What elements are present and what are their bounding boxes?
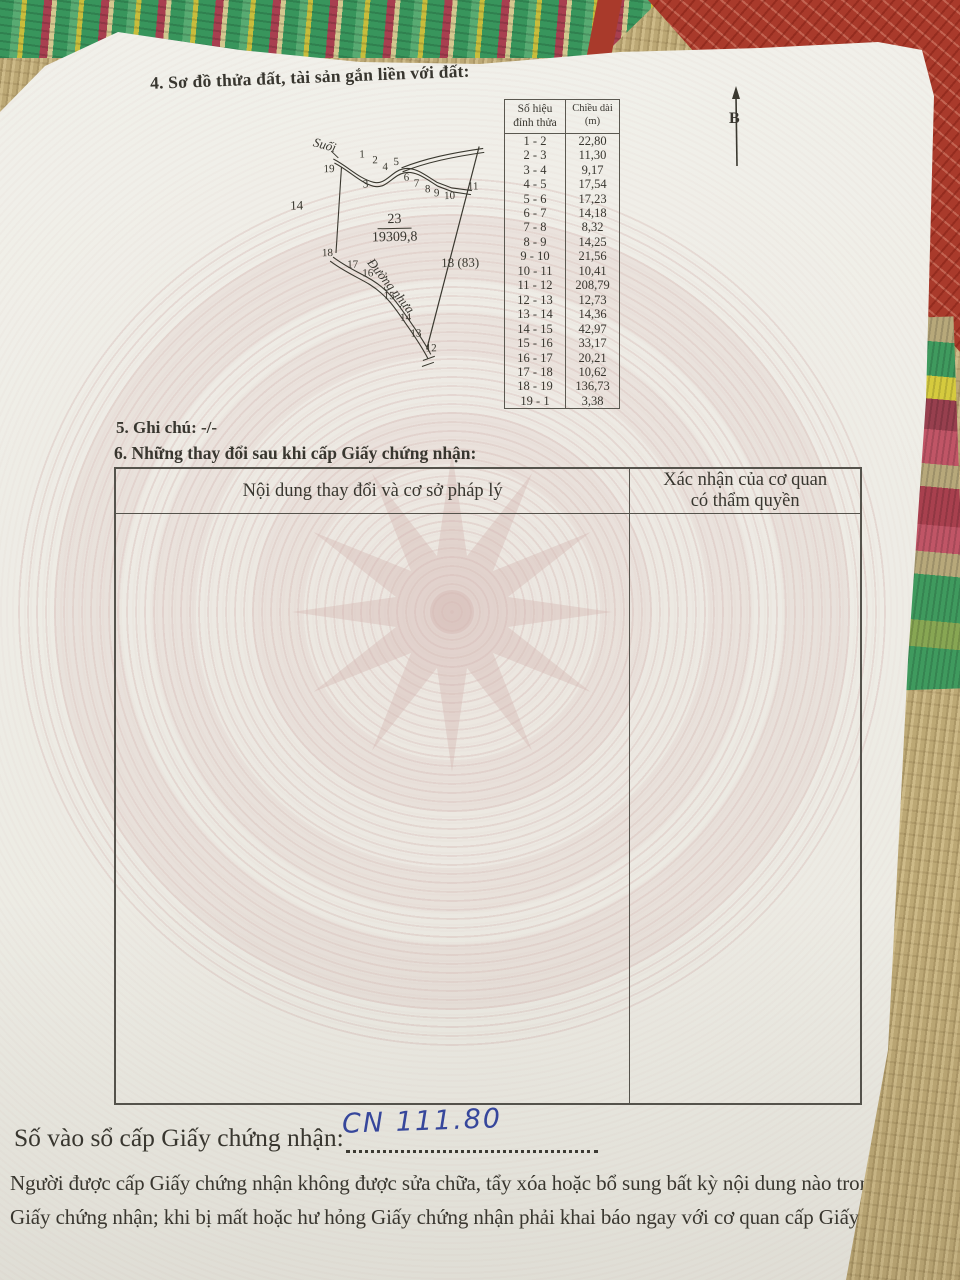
changes-table: Nội dung thay đổi và cơ sở pháp lý Xác n…	[114, 467, 862, 1105]
vertex-pair-cell: 9 - 10	[505, 249, 566, 263]
length-cell: 33,17	[566, 336, 619, 350]
table-row: 2 - 3 11,30	[505, 148, 619, 162]
vertex-label: 11	[468, 180, 479, 192]
length-cell: 17,23	[566, 192, 619, 206]
vertex-label: 4	[382, 161, 388, 173]
length-cell: 8,32	[566, 220, 619, 234]
certificate-paper: 4. Sơ đồ thửa đất, tài sản gắn liền với …	[0, 0, 960, 1280]
vertex-pair-cell: 18 - 19	[505, 379, 566, 393]
dotted-line: CN 111.80	[346, 1120, 598, 1153]
vertex-label: 1	[359, 148, 365, 160]
length-cell: 10,62	[566, 365, 619, 379]
vertex-pair-cell: 15 - 16	[505, 336, 566, 350]
vertex-label: 6	[404, 172, 410, 184]
length-cell: 11,30	[566, 148, 619, 162]
vertex-label: 15	[384, 290, 395, 302]
length-header: Chiều dài (m)	[566, 100, 619, 133]
length-cell: 14,25	[566, 235, 619, 249]
vertex-pair-cell: 13 - 14	[505, 307, 566, 321]
section4-title: 4. Sơ đồ thửa đất, tài sản gắn liền với …	[150, 59, 511, 94]
vertex-pair-cell: 2 - 3	[505, 148, 566, 162]
vertex-pair-cell: 7 - 8	[505, 220, 566, 234]
adjacent-parcel-left: 14	[290, 198, 303, 214]
length-cell: 10,41	[566, 264, 619, 278]
vertex-pair-cell: 6 - 7	[505, 206, 566, 220]
vertex-label: 19	[323, 163, 334, 175]
vertex-pair-cell: 3 - 4	[505, 163, 566, 177]
vertex-label: 14	[400, 312, 411, 324]
table-row: 6 - 7 14,18	[505, 206, 619, 220]
vertex-pair-header: Số hiệu đỉnh thửa	[505, 100, 566, 133]
changes-content-header: Nội dung thay đổi và cơ sở pháp lý	[116, 469, 630, 513]
vertex-pair-cell: 14 - 15	[505, 322, 566, 336]
vertex-label: 2	[372, 154, 378, 166]
vertex-pair-cell: 10 - 11	[505, 264, 566, 278]
vertex-label: 3	[363, 178, 369, 190]
parcel-area: 19309,8	[365, 229, 425, 246]
table-row: 9 - 10 21,56	[505, 249, 619, 263]
registry-number-handwritten: CN 111.80	[341, 1103, 502, 1140]
vertex-label: 10	[444, 190, 455, 202]
table-row: 13 - 14 14,36	[505, 307, 619, 321]
table-row: 1 - 2 22,80	[505, 134, 619, 148]
table-row: 19 - 1 3,38	[505, 394, 619, 408]
vertex-label: 9	[434, 187, 440, 199]
table-row: 18 - 19 136,73	[505, 379, 619, 393]
vertex-pair-cell: 1 - 2	[505, 134, 566, 148]
length-cell: 22,80	[566, 134, 619, 148]
table-row: 15 - 16 33,17	[505, 336, 619, 350]
length-cell: 20,21	[566, 351, 619, 365]
vertex-label: 8	[425, 183, 431, 195]
changes-confirmation-header: Xác nhận của cơ quan có thẩm quyền	[630, 469, 860, 513]
changes-content-cell	[116, 514, 630, 1103]
table-row: 14 - 15 42,97	[505, 322, 619, 336]
table-row: 17 - 18 10,62	[505, 365, 619, 379]
length-cell: 14,18	[566, 206, 619, 220]
length-cell: 17,54	[566, 177, 619, 191]
edge-length-rows: 1 - 2 22,80 2 - 3 11,30 3 - 4 9,17 4 - 5…	[505, 134, 619, 409]
north-label: B	[729, 110, 740, 128]
vertex-pair-cell: 4 - 5	[505, 177, 566, 191]
table-row: 11 - 12 208,79	[505, 278, 619, 292]
vertex-pair-cell: 5 - 6	[505, 192, 566, 206]
length-cell: 14,36	[566, 307, 619, 321]
length-cell: 3,38	[566, 394, 619, 408]
changes-table-header: Nội dung thay đổi và cơ sở pháp lý Xác n…	[116, 469, 860, 514]
length-cell: 9,17	[566, 163, 619, 177]
table-row: 5 - 6 17,23	[505, 192, 619, 206]
table-row: 12 - 13 12,73	[505, 293, 619, 307]
vertex-label: 18	[322, 247, 333, 259]
parcel-diagram: Suối Đường nhựa 23 19309,8 14 18 (83) 19…	[273, 126, 512, 380]
vertex-pair-cell: 17 - 18	[505, 365, 566, 379]
table-row: 3 - 4 9,17	[505, 163, 619, 177]
vertex-label: 5	[393, 156, 399, 168]
vertex-pair-cell: 16 - 17	[505, 351, 566, 365]
table-row: 16 - 17 20,21	[505, 351, 619, 365]
changes-table-body	[116, 514, 860, 1103]
vertex-pair-cell: 8 - 9	[505, 235, 566, 249]
vertex-label: 17	[347, 259, 358, 271]
edge-length-table-header: Số hiệu đỉnh thửa Chiều dài (m)	[505, 100, 619, 134]
section6-title: 6. Những thay đổi sau khi cấp Giấy chứng…	[114, 443, 476, 464]
vertex-label: 13	[410, 328, 421, 340]
length-cell: 21,56	[566, 249, 619, 263]
parcel-number: 23	[377, 212, 411, 230]
table-row: 4 - 5 17,54	[505, 177, 619, 191]
vertex-pair-cell: 19 - 1	[505, 394, 566, 408]
photo-scene: 4. Sơ đồ thửa đất, tài sản gắn liền với …	[0, 0, 960, 1280]
vertex-label: 12	[426, 342, 437, 354]
length-cell: 208,79	[566, 278, 619, 292]
north-arrow-icon: B	[722, 84, 758, 170]
vertex-label: 7	[414, 178, 420, 190]
table-row: 8 - 9 14,25	[505, 235, 619, 249]
footer-warning: Người được cấp Giấy chứng nhận không đượ…	[10, 1166, 950, 1234]
length-cell: 136,73	[566, 379, 619, 393]
length-cell: 12,73	[566, 293, 619, 307]
vertex-pair-cell: 11 - 12	[505, 278, 566, 292]
length-cell: 42,97	[566, 322, 619, 336]
vertex-pair-cell: 12 - 13	[505, 293, 566, 307]
table-row: 10 - 11 10,41	[505, 264, 619, 278]
edge-length-table: Số hiệu đỉnh thửa Chiều dài (m) 1 - 2 22…	[504, 99, 620, 409]
adjacent-parcel-right: 18 (83)	[441, 254, 479, 271]
section5-note: 5. Ghi chú: -/-	[116, 418, 217, 438]
registry-entry-line: Số vào sổ cấp Giấy chứng nhận: CN 111.80	[14, 1120, 634, 1153]
registry-label: Số vào sổ cấp Giấy chứng nhận:	[14, 1123, 344, 1153]
table-row: 7 - 8 8,32	[505, 220, 619, 234]
vertex-label: 16	[362, 267, 373, 279]
